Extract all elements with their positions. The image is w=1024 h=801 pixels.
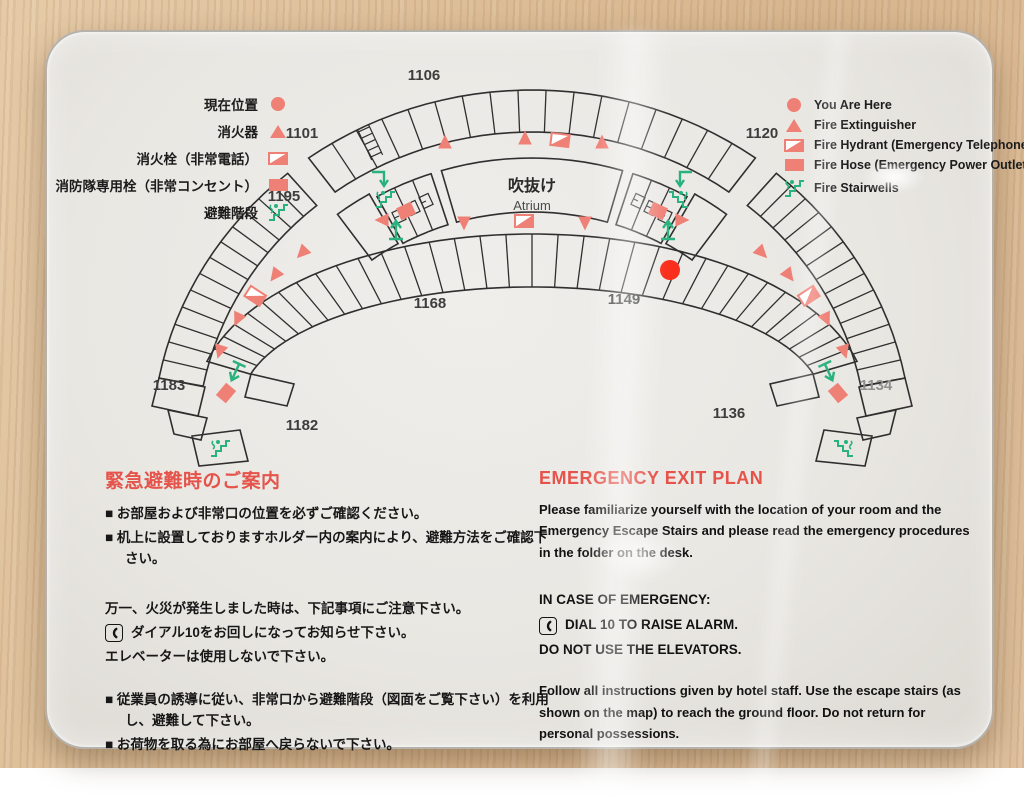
- fire-extinguisher-icon: [753, 243, 773, 263]
- legend-label: Fire Extinguisher: [814, 118, 916, 132]
- en-paragraph-1: Please familiarize yourself with the loc…: [539, 499, 975, 563]
- en-case-heading: IN CASE OF EMERGENCY:: [539, 589, 975, 612]
- legend-item-you-are-here: 現在位置: [57, 94, 289, 114]
- room-number-label: 1136: [713, 405, 746, 422]
- fire-hose-icon: [396, 202, 416, 220]
- fire-extinguisher-icon: [780, 266, 799, 285]
- atrium-label-jp: 吹抜け: [508, 176, 556, 195]
- bullet-icon: ■: [105, 692, 113, 707]
- fire-extinguisher-icon: [457, 217, 471, 231]
- legend-item-fire-hose: Fire Hose (Emergency Power Outlet): [783, 158, 1024, 172]
- phone-icon: [539, 617, 557, 635]
- legend-label: 現在位置: [204, 94, 258, 114]
- fire-extinguisher-icon: [267, 125, 289, 138]
- fire-stairwell-icon: [267, 202, 289, 222]
- room-number-label: 1149: [608, 291, 641, 308]
- legend-label: Fire Hydrant (Emergency Telephone): [814, 138, 1024, 152]
- room-number-label: 1106: [408, 67, 441, 84]
- fire-extinguisher-icon: [211, 343, 228, 360]
- fire-extinguisher-icon: [578, 217, 592, 231]
- legend-label: You Are Here: [814, 98, 892, 112]
- escape-arrow-icon: [372, 172, 388, 186]
- bullet-icon: ■: [105, 530, 113, 545]
- japanese-heading: 緊急避難時のご案内: [105, 466, 549, 493]
- emergency-exit-sign-panel: 1106110111201195116811491183118211361134…: [45, 30, 994, 749]
- fire-stairwell-icon: [669, 191, 688, 207]
- fire-hose-icon: [267, 179, 289, 191]
- fire-hose-icon: [216, 383, 236, 404]
- legend-item-fire-extinguisher: Fire Extinguisher: [783, 118, 1024, 132]
- you-are-here-icon: [267, 97, 289, 111]
- fire-stairwell-icon: [834, 440, 853, 456]
- escape-arrow-icon: [676, 172, 692, 186]
- jp-notice-intro: 万一、火災が発生しました時は、下記事項にご注意下さい。: [105, 598, 549, 620]
- legend-item-fire-stairs: Fire Stairwells: [783, 178, 1024, 198]
- fire-extinguisher-icon: [836, 343, 853, 360]
- en-elevator-line: DO NOT USE THE ELEVATORS.: [539, 639, 975, 662]
- room-number-label: 1183: [153, 377, 186, 394]
- legend-item-fire-extinguisher: 消火器: [57, 121, 289, 141]
- legend-item-fire-hose: 消防隊専用栓（非常コンセント）: [57, 175, 289, 195]
- fire-hose-icon: [783, 159, 805, 171]
- legend-label: 消火栓（非常電話）: [137, 148, 259, 168]
- legend-english: You Are Here Fire Extinguisher Fire Hydr…: [783, 98, 1024, 204]
- fire-extinguisher-icon: [595, 135, 609, 149]
- legend-label: Fire Stairwells: [814, 181, 899, 195]
- english-heading: EMERGENCY EXIT PLAN: [539, 468, 975, 489]
- atrium-label-en: Atrium: [513, 198, 551, 213]
- fire-hose-icon: [648, 202, 668, 220]
- jp-bullet-4: ■ お荷物を取る為にお部屋へ戻らないで下さい。: [105, 734, 549, 756]
- legend-japanese: 現在位置 消火器 消火栓（非常電話） 消防隊専用栓（非常コンセント） 避難階段: [57, 94, 289, 229]
- fire-extinguisher-icon: [292, 243, 312, 263]
- elevator-car: [631, 193, 645, 208]
- jp-bullet-1: ■ お部屋および非常口の位置を必ずご確認ください。: [105, 503, 549, 525]
- fire-hose-icon: [828, 383, 848, 404]
- elevator-car: [419, 193, 433, 208]
- room-number-label: 1168: [414, 295, 447, 312]
- en-dial-line: DIAL 10 TO RAISE ALARM.: [539, 614, 975, 637]
- room-number-label: 1182: [286, 417, 319, 434]
- you-are-here-marker: [660, 260, 680, 280]
- legend-label: Fire Hose (Emergency Power Outlet): [814, 158, 1024, 172]
- fire-extinguisher-icon: [783, 119, 805, 132]
- stair-tips: [152, 374, 912, 466]
- room-number-label: 1134: [860, 377, 893, 394]
- jp-dial-line: ダイアル10をお回しになってお知らせ下さい。: [105, 622, 549, 644]
- fire-hydrant-icon: [783, 139, 805, 152]
- fire-hydrant-icon: [550, 133, 569, 147]
- room-number-label: 1120: [746, 125, 779, 142]
- fire-stairwell-icon: [376, 191, 395, 207]
- escape-arrow-icon: [389, 221, 403, 239]
- phone-icon: [105, 624, 123, 642]
- japanese-instructions: 緊急避難時のご案内 ■ お部屋および非常口の位置を必ずご確認ください。 ■ 机上…: [105, 466, 549, 757]
- fire-stairwell-icon: [211, 440, 230, 456]
- fire-extinguisher-icon: [265, 266, 284, 285]
- legend-item-fire-hydrant: 消火栓（非常電話）: [57, 148, 289, 168]
- legend-label: 避難階段: [204, 202, 258, 222]
- legend-item-you-are-here: You Are Here: [783, 98, 1024, 112]
- legend-label: 消火器: [218, 121, 259, 141]
- bullet-icon: ■: [105, 737, 113, 752]
- legend-label: 消防隊専用栓（非常コンセント）: [56, 175, 259, 195]
- jp-elevator-line: エレベーターは使用しないで下さい。: [105, 646, 549, 668]
- en-paragraph-2: Follow all instructions given by hotel s…: [539, 680, 975, 744]
- fire-hydrant-icon: [267, 152, 289, 165]
- escape-arrow-icon: [661, 221, 675, 239]
- fire-stairwell-icon: [783, 178, 805, 198]
- you-are-here-icon: [783, 98, 805, 112]
- english-instructions: EMERGENCY EXIT PLAN Please familiarize y…: [539, 468, 975, 744]
- jp-bullet-3: ■ 従業員の誘導に従い、非常口から避難階段（図面をご覧下さい）を利用し、避難して…: [105, 689, 549, 732]
- room-number-label: 1101: [286, 125, 319, 142]
- jp-bullet-2: ■ 机上に設置しておりますホルダー内の案内により、避難方法をご確認下さい。: [105, 527, 549, 570]
- legend-item-fire-hydrant: Fire Hydrant (Emergency Telephone): [783, 138, 1024, 152]
- legend-item-fire-stairs: 避難階段: [57, 202, 289, 222]
- bullet-icon: ■: [105, 506, 113, 521]
- fire-hydrant-icon: [515, 215, 533, 227]
